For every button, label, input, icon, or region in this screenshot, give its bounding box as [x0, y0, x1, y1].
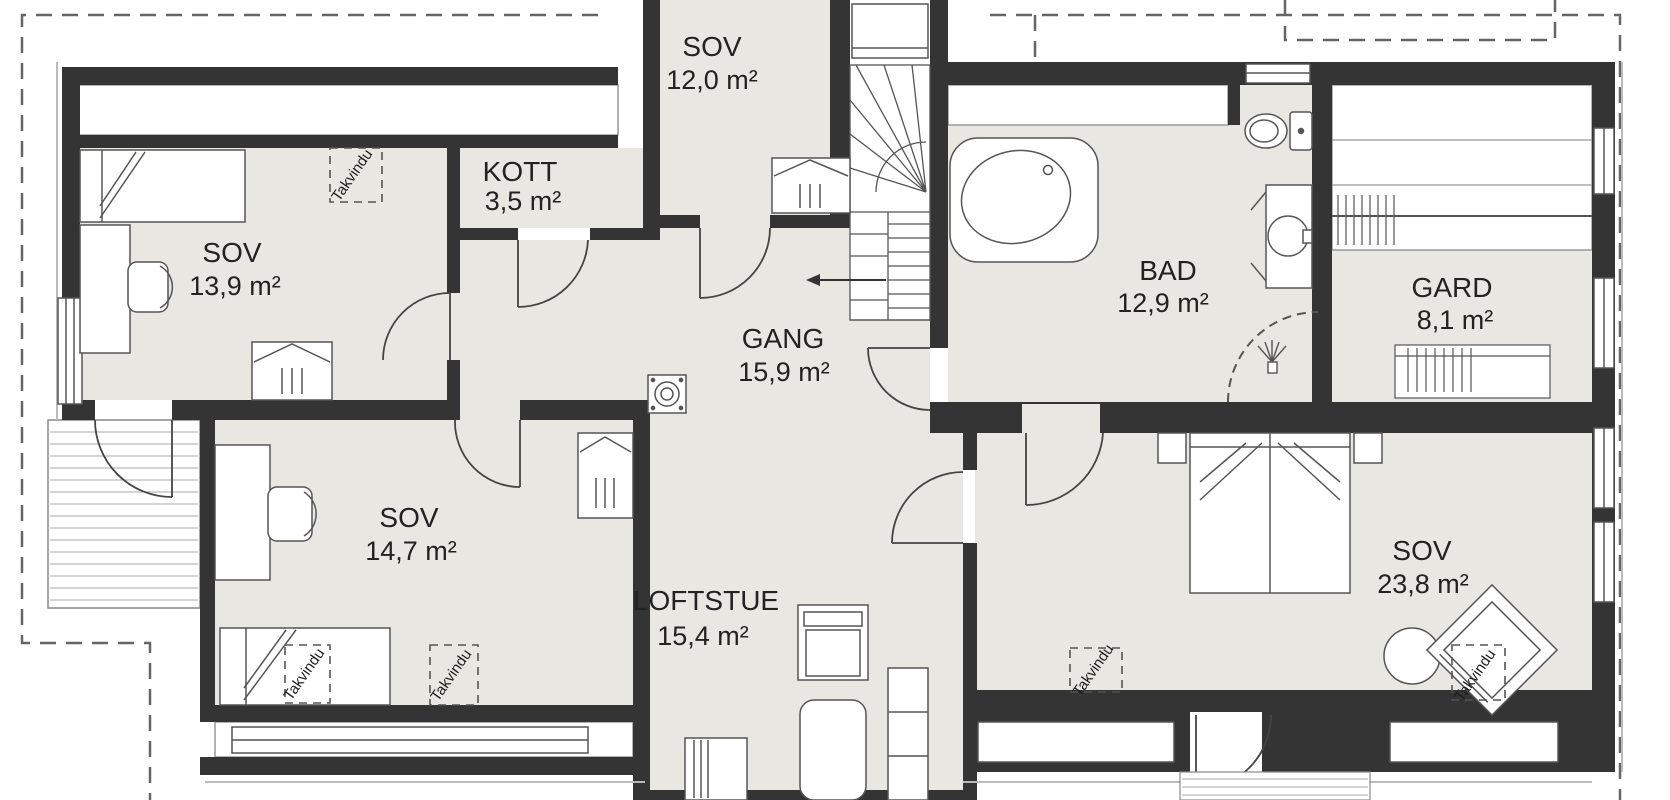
- window-gard-right: [1594, 278, 1614, 368]
- wall-knee-inner-top-left: [78, 135, 618, 148]
- shelf-icon: [888, 668, 928, 800]
- wall-sov147-bottom-outer: [200, 757, 650, 775]
- balcony-left: [48, 420, 200, 608]
- wall-kott-bottom-right: [590, 228, 643, 240]
- room-label-bad-name: BAD: [1139, 255, 1197, 286]
- desk-sov-14-7: [215, 445, 270, 580]
- room-label-bad-area: 12,9 m²: [1117, 288, 1209, 318]
- wall-mid-band-2: [172, 400, 455, 420]
- room-label-sov-14-7-name: SOV: [379, 502, 438, 533]
- floor-plan-svg: SOV 13,9 m² KOTT 3,5 m² SOV 12,0 m² BAD …: [0, 0, 1670, 800]
- wall-left-upper: [62, 67, 80, 298]
- door-gap-sov-23-8: [1022, 404, 1100, 433]
- room-label-sov-13-9-area: 13,9 m²: [189, 271, 281, 301]
- dresser-sov-13-9: [252, 342, 332, 400]
- wall-mid-band-3: [520, 400, 650, 420]
- room-label-loftstue-name: LOFTSTUE: [633, 585, 779, 616]
- window-sov238-bottom-1: [978, 722, 1174, 762]
- room-label-loftstue-area: 15,4 m²: [657, 621, 749, 651]
- room-label-sov-23-8-name: SOV: [1392, 535, 1451, 566]
- desk-sov-13-9: [80, 225, 130, 353]
- chair-sov-14-7: [268, 487, 316, 541]
- knee-band-bad: [948, 85, 1228, 125]
- dresser-sov-14-7: [578, 433, 633, 518]
- wardrobe-gard-bottom: [1395, 345, 1550, 398]
- floor-plan: SOV 13,9 m² KOTT 3,5 m² SOV 12,0 m² BAD …: [0, 0, 1670, 800]
- chair-sov-13-9: [128, 262, 172, 312]
- knee-band-top-left: [78, 85, 618, 135]
- terrace-deck-bottom-right: [1180, 772, 1370, 800]
- room-label-kott-area: 3,5 m²: [485, 186, 562, 216]
- toilet-icon: [1245, 112, 1312, 150]
- wall-kott-sov12: [643, 0, 660, 240]
- gard-wardrobe-zone: [1332, 85, 1592, 250]
- wall-bad-alcove-jog: [1228, 85, 1240, 125]
- bed-sov-13-9: [80, 150, 245, 222]
- room-label-kott-name: KOTT: [483, 156, 558, 187]
- room-label-gang-area: 15,9 m²: [738, 357, 830, 387]
- vent-fixture-gang: [648, 375, 686, 413]
- chaise-icon: [800, 700, 866, 800]
- window-right-2: [1594, 428, 1614, 508]
- round-table-icon: [1384, 628, 1440, 684]
- wall-bad-gard: [1312, 85, 1332, 402]
- wall-kott-bottom-left: [447, 228, 518, 240]
- room-label-sov-14-7-area: 14,7 m²: [365, 536, 457, 566]
- wall-stairs-bad: [930, 0, 948, 348]
- room-label-gang-name: GANG: [742, 323, 824, 354]
- window-sov238-bottom-2: [1390, 722, 1558, 762]
- window-right-1: [1594, 128, 1614, 194]
- window-right-3: [1594, 522, 1614, 602]
- tv-bench-icon: [685, 738, 747, 800]
- wall-gang-sov238-upper: [963, 433, 977, 470]
- window-bad-top: [1246, 64, 1310, 83]
- wall-sov12-bottom-left: [660, 215, 700, 228]
- wall-sov147-bottom-inner: [200, 705, 650, 722]
- room-label-gard-name: GARD: [1412, 272, 1493, 303]
- room-label-sov-12-0-area: 12,0 m²: [666, 65, 758, 95]
- room-label-sov-13-9-name: SOV: [202, 237, 261, 268]
- double-bed-icon: [1158, 433, 1382, 593]
- window-sov139-left: [58, 298, 82, 404]
- bathtub-icon: [950, 138, 1098, 262]
- wall-sov147-left: [200, 420, 215, 722]
- window-stair-dormer: [852, 4, 928, 58]
- wall-top-left-outer: [62, 67, 618, 85]
- armchair-icon: [798, 605, 868, 680]
- room-label-sov-23-8-area: 23,8 m²: [1377, 569, 1469, 599]
- dresser-sov-12-0: [772, 158, 850, 213]
- room-label-gard-area: 8,1 m²: [1417, 305, 1494, 335]
- window-sov147-bottom: [232, 727, 588, 753]
- room-label-sov-12-0-name: SOV: [682, 31, 741, 62]
- wall-sov139-corridor-upper: [447, 148, 460, 293]
